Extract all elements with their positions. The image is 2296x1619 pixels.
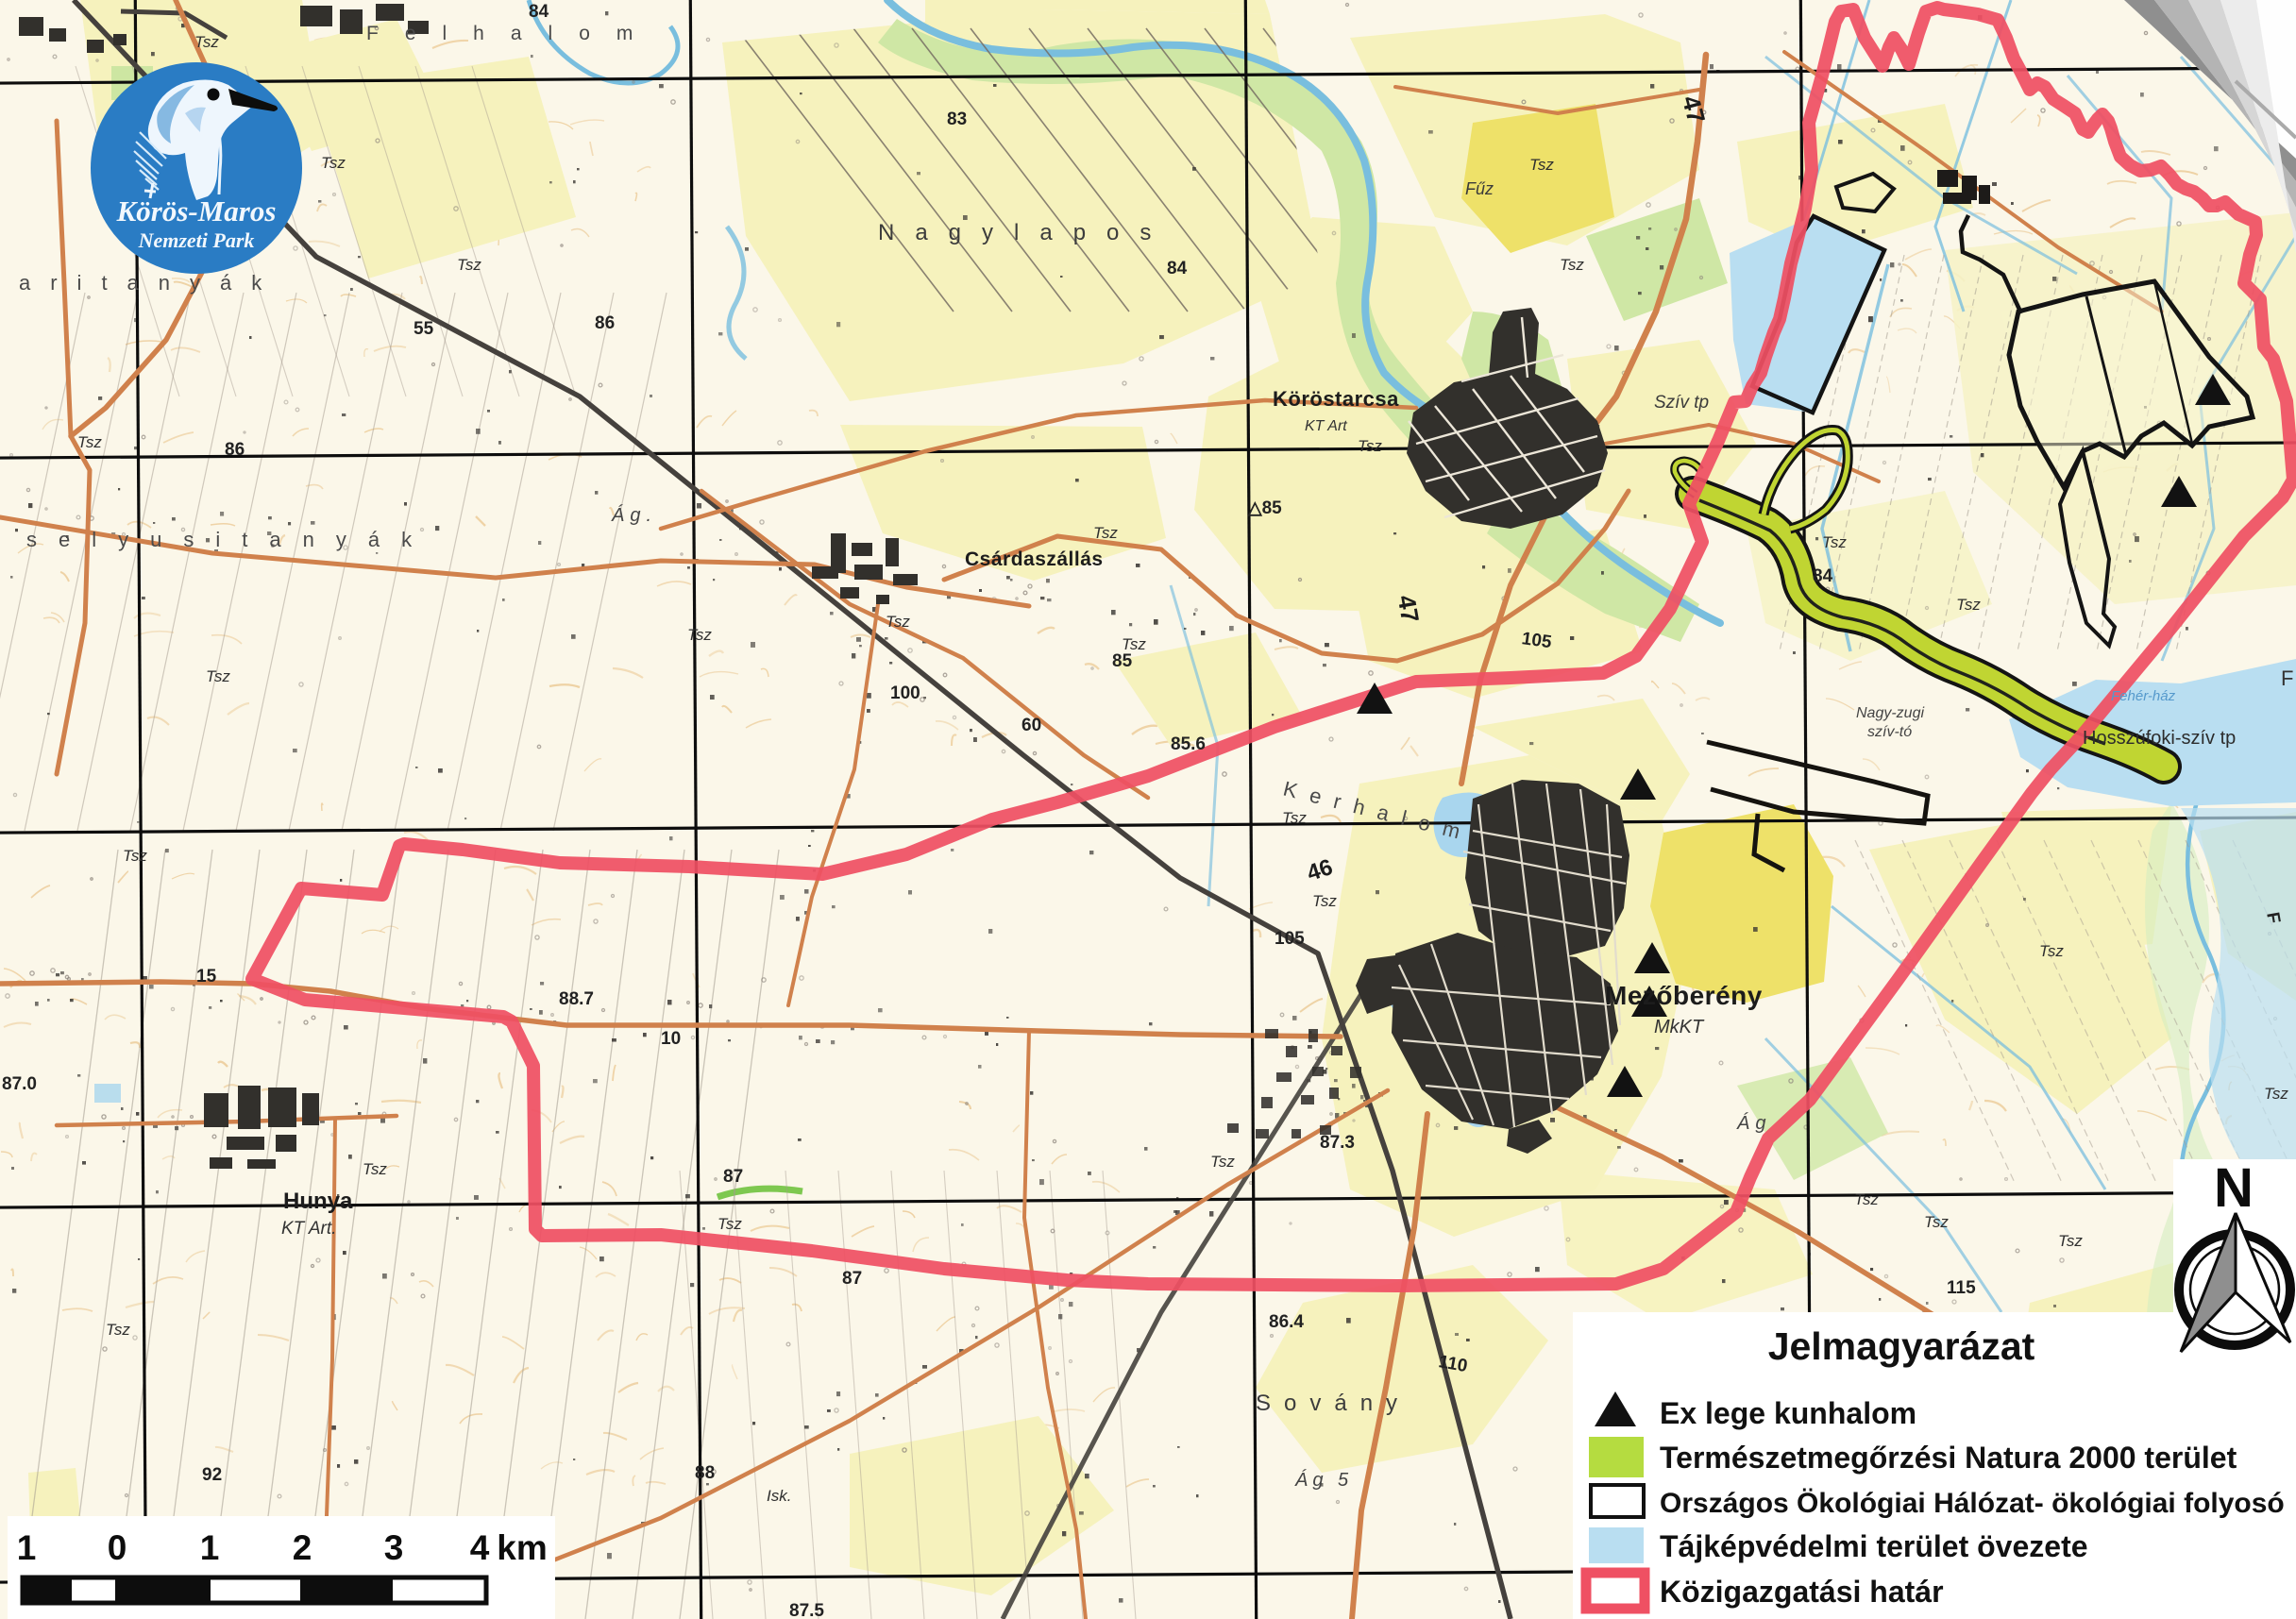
svg-text:Szív tp: Szív tp bbox=[1654, 393, 1709, 413]
svg-text:Tsz: Tsz bbox=[194, 33, 219, 51]
svg-text:83: 83 bbox=[947, 110, 967, 129]
svg-text:KT Art: KT Art bbox=[1305, 418, 1347, 434]
svg-text:Csárdaszállás: Csárdaszállás bbox=[965, 548, 1104, 570]
svg-text:MkKT: MkKT bbox=[1654, 1017, 1705, 1037]
svg-text:85: 85 bbox=[1112, 651, 1133, 671]
svg-text:Tsz: Tsz bbox=[77, 433, 102, 451]
svg-text:87: 87 bbox=[842, 1269, 862, 1289]
svg-text:Tsz: Tsz bbox=[886, 613, 910, 631]
svg-text:Sovány: Sovány bbox=[1256, 1391, 1410, 1416]
svg-text:85.6: 85.6 bbox=[1171, 734, 1206, 754]
svg-text:86: 86 bbox=[225, 440, 245, 460]
svg-text:Tsz: Tsz bbox=[1924, 1213, 1949, 1231]
svg-text:Tsz: Tsz bbox=[1312, 892, 1337, 910]
svg-text:Ág.: Ág. bbox=[611, 504, 657, 526]
svg-text:105: 105 bbox=[1520, 629, 1553, 652]
svg-text:Körös-Maros: Körös-Maros bbox=[116, 194, 277, 228]
svg-text:Természetmegőrzési Natura 2000: Természetmegőrzési Natura 2000 terület bbox=[1660, 1441, 2237, 1475]
svg-text:84: 84 bbox=[1167, 259, 1188, 278]
svg-text:87.0: 87.0 bbox=[2, 1074, 37, 1094]
svg-text:Tsz: Tsz bbox=[106, 1321, 130, 1339]
svg-text:60: 60 bbox=[1021, 716, 1041, 735]
svg-text:Tsz: Tsz bbox=[363, 1160, 387, 1178]
svg-text:Tsz: Tsz bbox=[717, 1215, 742, 1233]
svg-text:szív-tó: szív-tó bbox=[1867, 724, 1912, 740]
svg-text:Tsz: Tsz bbox=[1956, 596, 1981, 614]
svg-text:F: F bbox=[2281, 666, 2293, 690]
svg-text:Nagylapos: Nagylapos bbox=[878, 220, 1172, 245]
svg-text:87: 87 bbox=[723, 1167, 743, 1187]
svg-text:1: 1 bbox=[17, 1528, 37, 1567]
svg-text:87.5: 87.5 bbox=[789, 1601, 824, 1619]
svg-text:Tsz: Tsz bbox=[1210, 1153, 1235, 1171]
svg-text:Tsz: Tsz bbox=[1358, 437, 1382, 455]
svg-text:Tsz: Tsz bbox=[2264, 1085, 2288, 1103]
svg-text:105: 105 bbox=[1275, 929, 1305, 949]
svg-text:3: 3 bbox=[384, 1528, 404, 1567]
svg-text:Tsz: Tsz bbox=[1822, 533, 1847, 551]
svg-text:Tsz: Tsz bbox=[457, 256, 481, 274]
svg-text:100: 100 bbox=[890, 683, 920, 703]
svg-text:88.7: 88.7 bbox=[559, 989, 594, 1009]
svg-text:Tsz: Tsz bbox=[1854, 1190, 1879, 1208]
svg-text:0: 0 bbox=[108, 1528, 127, 1567]
svg-text:15: 15 bbox=[196, 967, 217, 987]
svg-text:Jelmagyarázat: Jelmagyarázat bbox=[1768, 1324, 2035, 1368]
svg-text:Nemzeti Park: Nemzeti Park bbox=[138, 228, 255, 252]
svg-text:KT Art.: KT Art. bbox=[281, 1219, 336, 1239]
svg-text:4: 4 bbox=[470, 1528, 490, 1567]
svg-text:84: 84 bbox=[1813, 566, 1833, 586]
svg-text:Tsz: Tsz bbox=[1529, 156, 1554, 174]
svg-text:Hosszúfoki-szív tp: Hosszúfoki-szív tp bbox=[2083, 728, 2236, 749]
svg-text:86: 86 bbox=[595, 313, 615, 333]
svg-text:Ex lege kunhalom: Ex lege kunhalom bbox=[1660, 1396, 1916, 1430]
svg-text:Nagy-zugi: Nagy-zugi bbox=[1856, 705, 1924, 721]
svg-text:Fehér-ház: Fehér-ház bbox=[2111, 688, 2176, 704]
svg-text:Tsz: Tsz bbox=[687, 626, 712, 644]
svg-text:86.4: 86.4 bbox=[1269, 1312, 1304, 1332]
svg-text:Közigazgatási határ: Közigazgatási határ bbox=[1660, 1575, 1944, 1609]
svg-text:km: km bbox=[497, 1528, 547, 1567]
svg-text:Tsz: Tsz bbox=[1093, 524, 1118, 542]
svg-text:Mezőberény: Mezőberény bbox=[1605, 981, 1763, 1010]
svg-text:87.3: 87.3 bbox=[1320, 1133, 1355, 1153]
svg-text:Tsz: Tsz bbox=[1560, 256, 1584, 274]
svg-text:Tsz: Tsz bbox=[2039, 942, 2064, 960]
svg-text:92: 92 bbox=[202, 1465, 222, 1485]
svg-text:N: N bbox=[2214, 1157, 2254, 1219]
svg-text:Tájképvédelmi terület övezete: Tájképvédelmi terület övezete bbox=[1660, 1529, 2088, 1563]
svg-text:Isk.: Isk. bbox=[767, 1487, 791, 1505]
svg-text:1: 1 bbox=[200, 1528, 220, 1567]
svg-text:selyusitanyák: selyusitanyák bbox=[26, 528, 433, 551]
svg-text:Tsz: Tsz bbox=[206, 667, 230, 685]
svg-text:Tsz: Tsz bbox=[123, 847, 147, 865]
svg-text:Országos Ökológiai Hálózat- ök: Országos Ökológiai Hálózat- ökológiai fo… bbox=[1660, 1488, 2285, 1519]
svg-text:Ág 5: Ág 5 bbox=[1294, 1469, 1353, 1491]
svg-text:47: 47 bbox=[1393, 593, 1426, 625]
svg-text:Ág: Ág bbox=[1736, 1112, 1771, 1134]
svg-text:10: 10 bbox=[661, 1029, 681, 1049]
svg-text:Tsz: Tsz bbox=[1282, 809, 1307, 827]
svg-text:Felhalom: Felhalom bbox=[366, 23, 659, 44]
svg-text:△85: △85 bbox=[1247, 498, 1282, 518]
svg-text:88: 88 bbox=[695, 1463, 715, 1483]
svg-text:55: 55 bbox=[414, 319, 434, 339]
svg-text:aritanyák: aritanyák bbox=[19, 271, 281, 295]
svg-text:Köröstarcsa: Köröstarcsa bbox=[1273, 387, 1399, 411]
svg-text:Tsz: Tsz bbox=[2058, 1232, 2083, 1250]
svg-text:115: 115 bbox=[1947, 1278, 1976, 1298]
svg-text:Hunya: Hunya bbox=[283, 1189, 353, 1214]
svg-text:Fűz: Fűz bbox=[1465, 179, 1494, 198]
svg-text:84: 84 bbox=[529, 2, 549, 22]
svg-text:2: 2 bbox=[293, 1528, 312, 1567]
svg-text:Tsz: Tsz bbox=[321, 154, 346, 172]
